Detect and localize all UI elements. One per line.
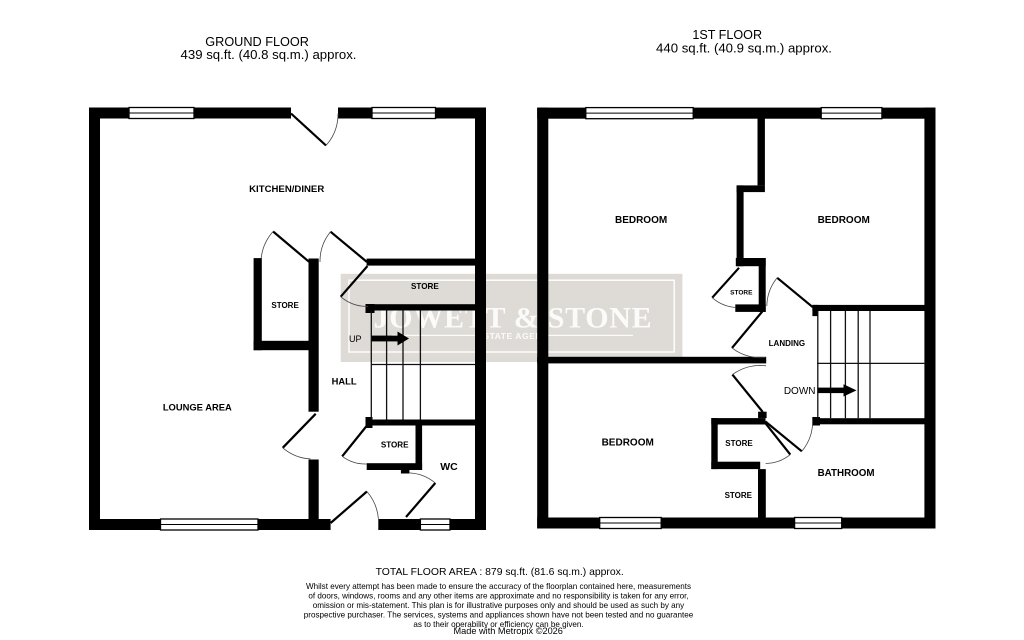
svg-text:BEDROOM: BEDROOM: [818, 215, 870, 226]
svg-text:Whilst every attempt has been: Whilst every attempt has been made to en…: [306, 582, 691, 591]
svg-text:LANDING: LANDING: [769, 339, 805, 348]
svg-text:TOTAL FLOOR AREA : 879 sq.ft.: TOTAL FLOOR AREA : 879 sq.ft. (81.6 sq.m…: [376, 567, 624, 578]
svg-text:omission or mis-statement. Thi: omission or mis-statement. This plan is …: [313, 601, 685, 610]
svg-text:WC: WC: [440, 461, 458, 473]
svg-text:BATHROOM: BATHROOM: [818, 468, 875, 479]
svg-text:STORE: STORE: [381, 440, 409, 449]
svg-text:BEDROOM: BEDROOM: [615, 215, 667, 226]
svg-text:STORE: STORE: [725, 491, 753, 500]
svg-text:440 sq.ft. (40.9 sq.m.) approx: 440 sq.ft. (40.9 sq.m.) approx.: [656, 40, 832, 55]
svg-text:Made with Metropix ©2026: Made with Metropix ©2026: [453, 626, 562, 635]
svg-text:STORE: STORE: [411, 282, 439, 291]
svg-text:439 sq.ft. (40.8 sq.m.) approx: 439 sq.ft. (40.8 sq.m.) approx.: [181, 47, 357, 62]
svg-text:BEDROOM: BEDROOM: [602, 438, 654, 449]
svg-text:STORE: STORE: [271, 301, 299, 310]
svg-text:of doors, windows, rooms and a: of doors, windows, rooms and any other i…: [308, 592, 688, 601]
svg-text:STORE: STORE: [725, 439, 753, 448]
svg-text:HALL: HALL: [332, 375, 357, 386]
svg-text:LOUNGE AREA: LOUNGE AREA: [163, 401, 232, 412]
svg-text:prospective purchaser. The ser: prospective purchaser. The services, sys…: [304, 611, 694, 620]
svg-text:UP: UP: [349, 334, 362, 344]
svg-text:KITCHEN/DINER: KITCHEN/DINER: [249, 184, 324, 195]
svg-text:DOWN: DOWN: [784, 386, 816, 397]
svg-text:STORE: STORE: [730, 290, 753, 297]
